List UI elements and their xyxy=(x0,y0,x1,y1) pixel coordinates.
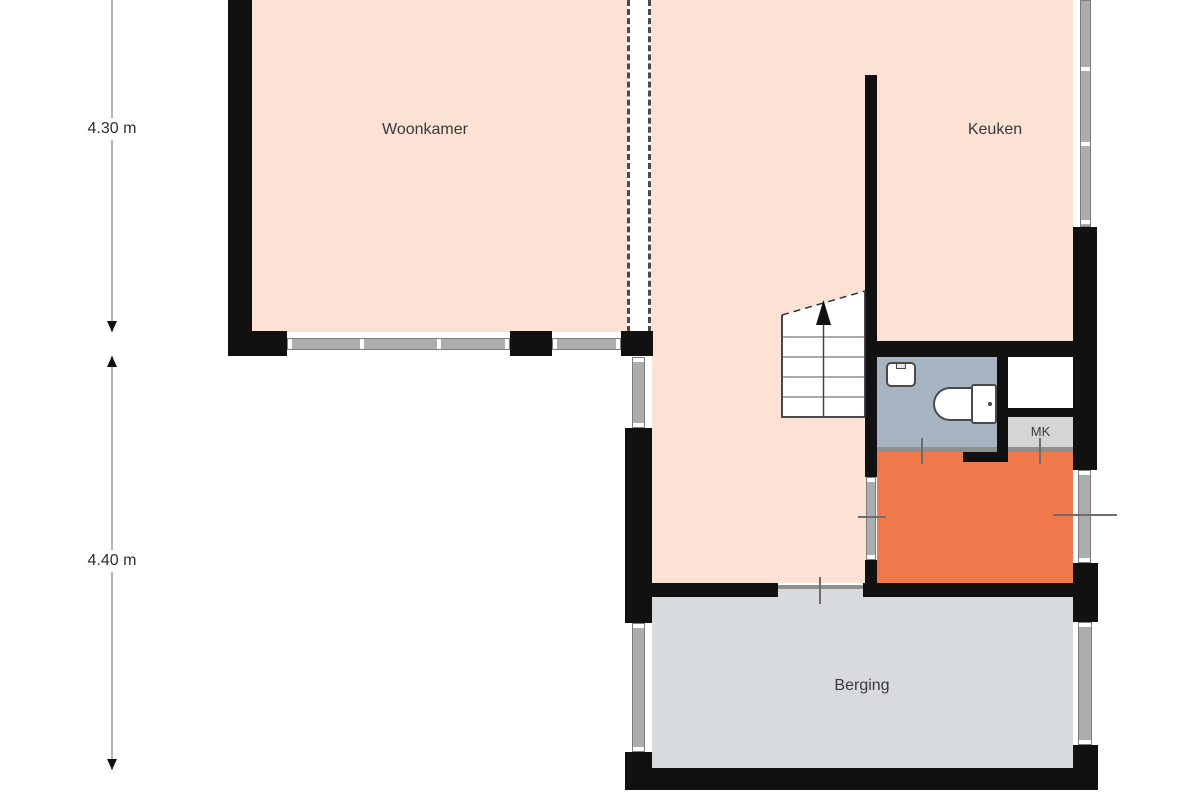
room-label-woonkamer: Woonkamer xyxy=(325,119,525,141)
window-mullion xyxy=(867,478,875,482)
arrow-down-icon xyxy=(107,321,117,332)
window-hal-west-upper xyxy=(632,357,645,428)
room-kast xyxy=(1008,357,1073,408)
wall-berging-bottom xyxy=(625,768,1098,790)
wall-berging-top-left xyxy=(640,583,778,597)
window-mullion xyxy=(1079,740,1091,744)
wall-right-mid-pier xyxy=(1073,563,1098,622)
window-mullion xyxy=(437,339,441,349)
sink-faucet-icon xyxy=(896,363,906,369)
window-mullion xyxy=(633,747,644,751)
wall-berging-top-right xyxy=(863,583,1073,597)
window-mullion xyxy=(1079,471,1090,475)
wall-woonkamer-bottom-right-corner xyxy=(621,331,653,356)
room-woonkamer xyxy=(252,0,627,332)
room-label-mk: MK xyxy=(1008,424,1073,439)
window-woonkamer-south-1 xyxy=(287,338,510,350)
wall-woonkamer-left xyxy=(228,0,252,356)
wall-right-upper xyxy=(1073,227,1097,470)
dimension-line-top xyxy=(111,0,113,332)
dimension-label-top: 4.30 m xyxy=(58,118,166,140)
window-entree-east xyxy=(1078,470,1091,563)
wall-toilet-right xyxy=(997,357,1008,447)
arrow-down-icon xyxy=(107,759,117,770)
floor-plan: 4.30 m 4.40 m Woonkamer Keuken MK Bergin… xyxy=(0,0,1200,800)
room-label-keuken: Keuken xyxy=(905,119,1085,141)
door-marker-entree-west xyxy=(858,516,886,518)
door-marker-berging xyxy=(819,577,821,604)
door-marker-mk xyxy=(1039,438,1041,464)
door-marker-toilet xyxy=(921,438,923,464)
window-mullion xyxy=(1081,67,1090,71)
door-entree-west xyxy=(866,477,876,560)
wall-toilet-top xyxy=(865,341,1097,357)
window-mullion xyxy=(505,339,509,349)
wall-hal-left xyxy=(625,428,652,623)
stairs xyxy=(775,285,870,420)
sink-icon xyxy=(886,362,916,387)
wall-kast-mk-divider xyxy=(1008,408,1073,417)
window-mullion xyxy=(288,339,292,349)
window-mullion xyxy=(633,358,644,362)
window-mullion xyxy=(1081,220,1090,224)
window-berging-east xyxy=(1078,622,1092,745)
room-entree xyxy=(877,452,1073,583)
dimension-label-bottom: 4.40 m xyxy=(58,550,166,572)
window-keuken-east xyxy=(1080,0,1091,227)
toilet-tank-icon xyxy=(971,384,997,424)
window-mullion xyxy=(1079,558,1090,562)
arrow-up-icon xyxy=(107,356,117,367)
room-label-berging: Berging xyxy=(762,675,962,697)
window-mullion xyxy=(553,339,557,349)
window-mullion xyxy=(616,339,620,349)
window-mullion xyxy=(1079,623,1091,627)
window-woonkamer-south-2 xyxy=(552,338,621,350)
toilet-flush-dot xyxy=(988,402,992,406)
window-mullion xyxy=(1081,142,1090,146)
window-mullion xyxy=(633,423,644,427)
window-berging-west xyxy=(632,623,645,752)
wall-woonkamer-bottom-pier xyxy=(510,331,552,356)
wall-toilet-bottom-thin xyxy=(877,447,997,452)
window-mullion xyxy=(633,624,644,628)
wall-berging-bottom-right-corner xyxy=(1073,745,1098,790)
window-mullion xyxy=(867,555,875,559)
window-mullion xyxy=(360,339,364,349)
open-connection-dashed-line xyxy=(627,0,651,332)
door-marker-entree-east xyxy=(1053,514,1117,516)
wall-woonkamer-bottom-corner xyxy=(228,331,287,356)
